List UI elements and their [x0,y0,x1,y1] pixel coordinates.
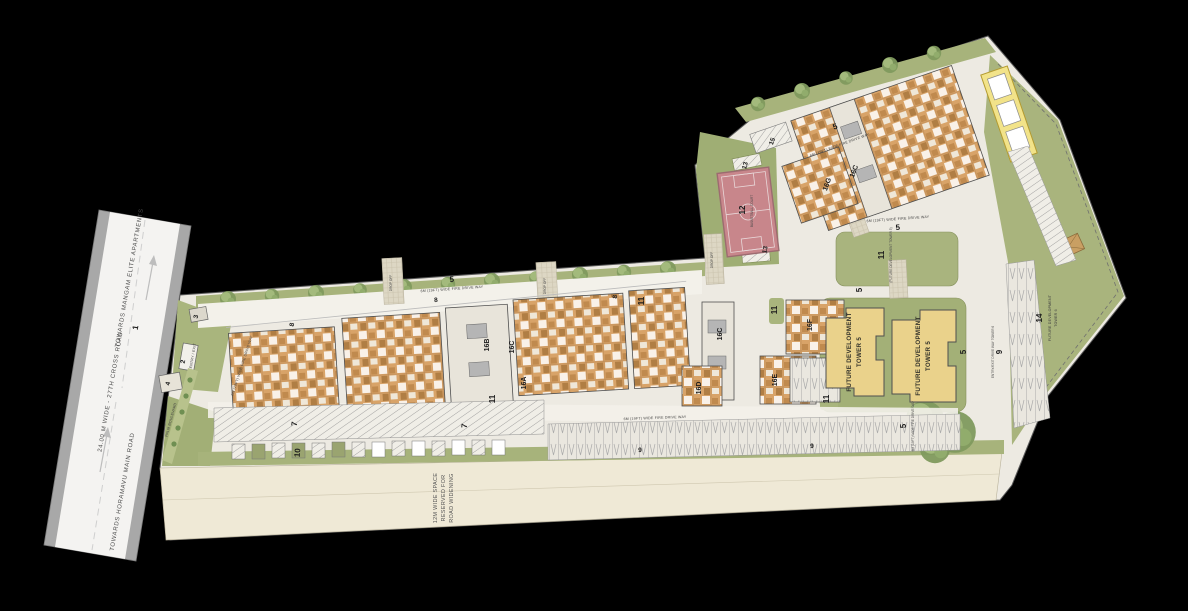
tree-icon [882,57,898,73]
marker-10: 10 [293,447,303,457]
future-tower5-block [826,308,884,396]
tree-icon [751,97,765,111]
tower-wing [342,312,446,412]
road-widening-label-1: 12M WIDE SPACE [433,473,439,524]
marker-9: 9 [810,443,814,450]
marker-14: 14 [1035,313,1044,322]
marker-11: 11 [488,394,497,403]
marker-11: 11 [877,250,886,259]
drop-off-label: DROP OFF [710,252,714,268]
tower-16b-label: 16B [484,339,491,352]
marker-9: 9 [638,447,642,454]
drop-off-label: DROP OFF [389,275,393,291]
site-plan-canvas: TOWARDS MANGAM ELITE APARTMENTS 24.00 M … [0,0,1188,611]
future-tower5-label-line2: TOWER 5 [856,337,863,367]
drop-off-paver [704,234,725,285]
future-tower5-label-line2: TOWER 5 [925,341,932,371]
marker-5: 5 [959,349,968,354]
fire-drive-label: 6M (19FT) WIDE FIRE DRIVE WAY [911,400,915,452]
marker-9: 9 [995,349,1004,354]
tower-16d-label: 16D [696,382,703,395]
site-plan-svg: TOWARDS MANGAM ELITE APARTMENTS 24.00 M … [0,0,1188,611]
marker-5: 5 [855,287,864,292]
future-tower5-label-line1: FUTURE DEVELOPMENT [846,312,853,391]
marker-11: 11 [822,394,831,403]
future-tower5-block [892,310,956,402]
future-tower6-label-line2: TOWER 6 [1054,309,1058,327]
tower-16c-label: 16C [717,328,724,341]
basketball-court [717,167,779,257]
tower-16c-label: 16C [509,341,516,354]
tower-wing [513,293,629,396]
road-widening-label-3: ROAD WIDENING [449,473,455,522]
marker-12: 12 [738,205,747,214]
tower-16a-label: 16A [521,377,528,390]
lift-core [466,324,487,339]
road-widening-label-2: RESERVED FOR [441,475,447,522]
drop-off-label: DROP OFF [543,278,547,294]
court-name-label: BASKETBALL COURT [750,195,754,227]
marker-5: 5 [899,423,908,428]
future-tower6-label-line1: FUTURE DEVELOPMENT [1048,294,1052,341]
drop-off-paver [382,258,404,305]
future-tower5-label-line1: FUTURE DEVELOPMENT [915,316,922,395]
tower-16e-label: 16E [772,373,779,386]
marker-11: 11 [637,296,646,305]
future-lawn-note: (FUTURE DEVELOPMENT TOWER 5) [889,227,893,282]
tree-icon [839,71,853,85]
tower-core [445,304,513,406]
marker-11: 11 [770,305,779,314]
tree-icon [794,83,810,99]
lift-core [469,361,490,376]
tower-16f-label: 16F [807,318,814,331]
tree-icon [927,46,941,60]
tower6-drive-label: ENTRY/EXIT DRIVE WAY TOWER 6 [991,326,995,379]
